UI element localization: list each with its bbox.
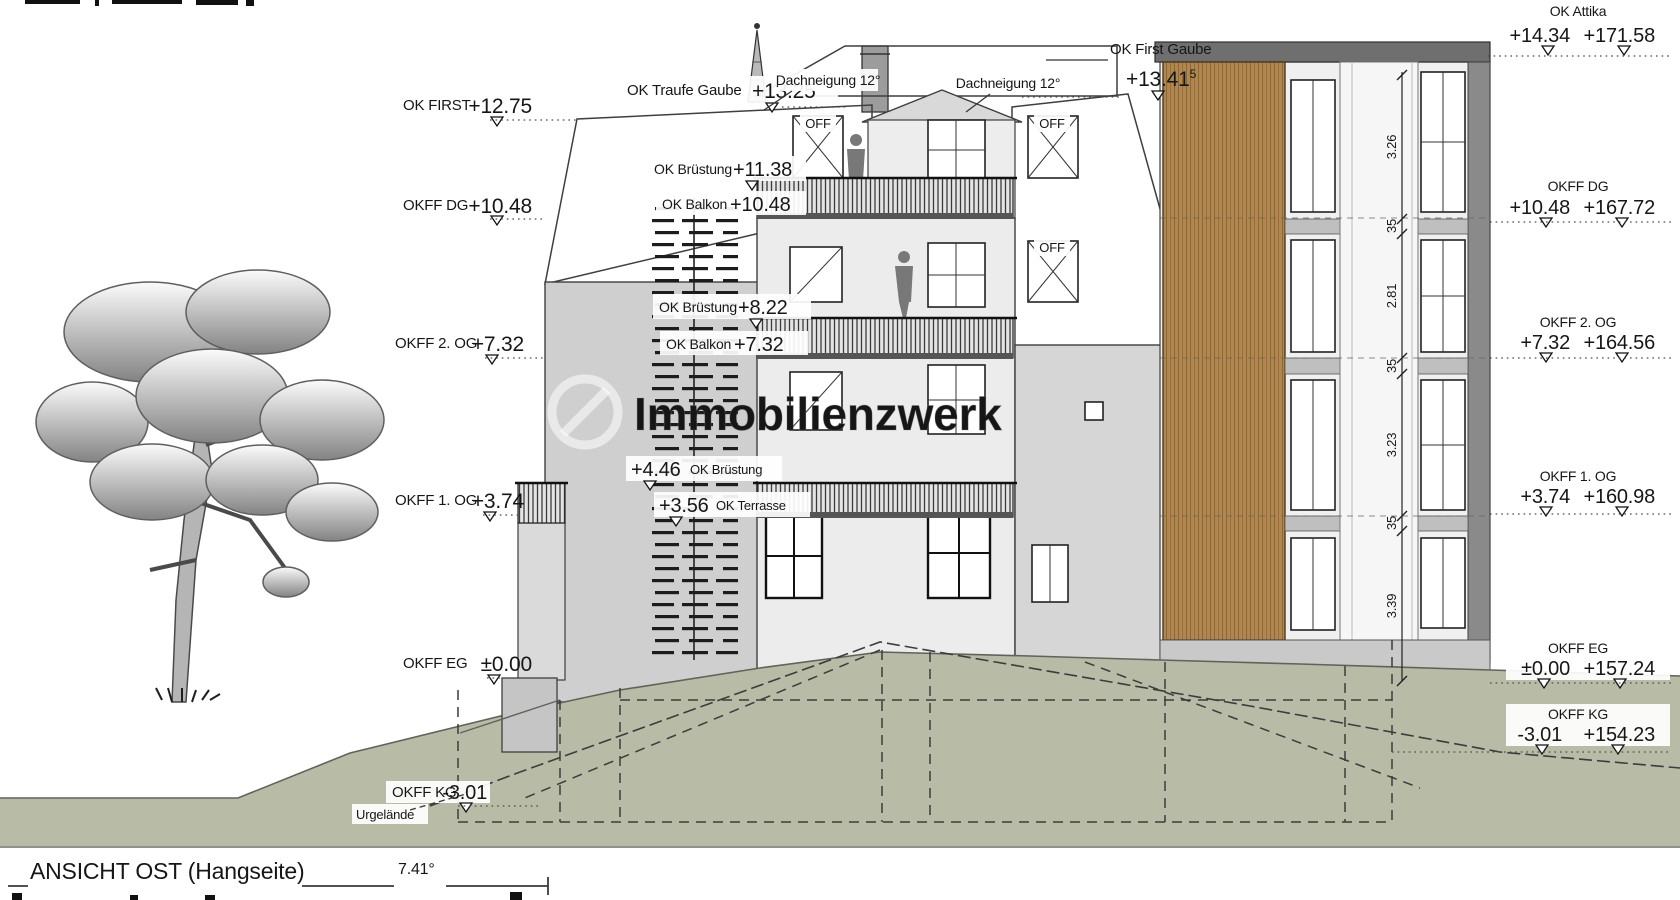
level-label: OKFF 1. OG	[395, 492, 477, 509]
level-marker-icon	[1540, 507, 1552, 516]
level-row-ok-attika: OK Attika +14.34 +171.58	[1488, 3, 1672, 56]
annotation-label: OK Balkon	[666, 336, 731, 352]
level-row-okff-2og: OKFF 2. OG +7.32	[395, 333, 545, 364]
tree	[36, 270, 384, 702]
level-marker-icon	[486, 355, 498, 364]
building	[515, 23, 1490, 702]
person-silhouette-1	[847, 134, 865, 180]
top-edge-fragment	[25, 0, 254, 6]
annotation-label: OK Traufe Gaube	[627, 82, 742, 99]
elevation-drawing-svg: Immobilienzwerk OK FIRST +12.75 OKFF DG …	[0, 0, 1680, 900]
level-marker-icon	[746, 181, 758, 190]
level-value: ±0.00	[481, 653, 532, 676]
level-value: +10.48	[468, 195, 532, 218]
level-value: -3.01	[1517, 724, 1562, 746]
level-label: OKFF KG	[1548, 706, 1608, 722]
level-row-okff-dg: OKFF DG +10.48	[403, 195, 545, 225]
level-absolute: +167.72	[1584, 197, 1656, 219]
dimension-value: 35	[1384, 359, 1399, 373]
svg-text:OFF: OFF	[1039, 116, 1065, 131]
svg-text:OFF: OFF	[805, 116, 831, 131]
level-absolute: +164.56	[1584, 332, 1656, 354]
tower-window-column-tall	[1421, 72, 1465, 628]
dimension-value: 35	[1384, 516, 1399, 530]
annotation-label: Dachneigung 12°	[776, 72, 881, 88]
level-marker-icon	[484, 512, 496, 521]
terrain-fill	[0, 652, 1680, 846]
level-absolute: +160.98	[1584, 486, 1656, 508]
title-block: ANSICHT OST (Hangseite) 7.41°	[8, 858, 548, 895]
annotation-label: OK Terrasse	[716, 498, 786, 513]
tower-glass-strip	[1340, 62, 1418, 640]
level-marker-icon	[488, 675, 500, 684]
annotation-value: +10.48	[730, 194, 791, 216]
tower	[1155, 42, 1490, 674]
annotation-value: +3.56	[659, 495, 709, 517]
tower-right-band	[1468, 62, 1490, 640]
level-row-okff-2og-right: OKFF 2. OG +7.32 +164.56	[1490, 314, 1672, 362]
annotation-label: Dachneigung 12°	[956, 75, 1061, 91]
annotation-value: +7.32	[734, 334, 784, 356]
annotation-label: OK Balkon	[662, 196, 727, 212]
level-value: +7.32	[472, 333, 524, 356]
level-absolute: +154.23	[1584, 724, 1656, 746]
dimension-value: 3.23	[1384, 433, 1399, 458]
bottom-edge-fragments	[12, 892, 522, 900]
annotation-value: +11.38	[733, 159, 792, 181]
tree-canopy	[36, 270, 384, 597]
level-marker-icon	[1542, 46, 1554, 55]
level-marker-icon	[491, 117, 503, 126]
level-row-okff-1og-right: OKFF 1. OG +3.74 +160.98	[1490, 468, 1672, 516]
level-label: OKFF DG	[403, 197, 468, 214]
dormer-label-2: OFF	[1034, 115, 1070, 132]
dormer-label-3: OFF	[1034, 239, 1070, 256]
level-marker-icon	[1616, 507, 1628, 516]
level-value: +10.48	[1509, 197, 1570, 219]
level-label: OKFF 1. OG	[1540, 468, 1617, 484]
annotation-label: OK First Gaube	[1110, 41, 1211, 58]
level-marker-icon	[1618, 46, 1630, 55]
urgelaende-label: Urgelände	[356, 807, 414, 822]
level-marker-icon	[491, 216, 503, 225]
annotation-value: +13.415	[1126, 67, 1197, 91]
level-row-okff-1og: OKFF 1. OG +3.74	[395, 490, 525, 521]
level-label: OKFF 2. OG	[395, 335, 477, 352]
annotation-value: +8.22	[738, 297, 788, 319]
annotation-value: +4.46	[631, 459, 681, 481]
annotation-label: OK Brüstung	[659, 299, 737, 315]
level-label: OK FIRST	[403, 97, 471, 114]
level-value: +12.75	[468, 95, 532, 118]
balkon-2og-annotation: OK Balkon +7.32	[660, 331, 808, 356]
terrain	[0, 652, 1680, 847]
drawing-title: ANSICHT OST (Hangseite)	[30, 858, 304, 884]
level-marker-icon	[1616, 218, 1628, 227]
facade-right-block	[1015, 345, 1162, 702]
annotation-label: OK Brüstung	[654, 161, 732, 177]
level-value: +3.74	[1520, 486, 1570, 508]
level-row-okff-dg-right: OKFF DG +10.48 +167.72	[1490, 178, 1672, 227]
level-label: OK Attika	[1550, 3, 1607, 19]
level-marker-icon	[1616, 353, 1628, 362]
level-value: +3.74	[472, 490, 525, 513]
dormer-label-1: OFF	[800, 115, 836, 132]
dimension-value: 2.81	[1384, 284, 1399, 309]
terrace-railing	[518, 483, 565, 523]
level-row-ok-first: OK FIRST +12.75	[403, 95, 577, 126]
level-value: +7.32	[1520, 332, 1570, 354]
dimension-value: 35	[1384, 219, 1399, 233]
watermark-text: Immobilienzwerk	[634, 388, 1002, 440]
level-label: OKFF EG	[1548, 640, 1608, 656]
level-absolute: +171.58	[1584, 25, 1656, 47]
svg-text:OFF: OFF	[1039, 240, 1065, 255]
level-label: OKFF DG	[1548, 178, 1609, 194]
level-label: OKFF 2. OG	[1540, 314, 1617, 330]
level-value: -3.01	[442, 782, 487, 804]
dimension-value: 3.39	[1384, 594, 1399, 619]
level-label: OKFF EG	[403, 655, 467, 672]
slope-angle-label: 7.41°	[398, 861, 435, 878]
level-absolute: +157.24	[1584, 658, 1656, 680]
wood-cladding-panel	[1163, 62, 1285, 640]
level-value: +14.34	[1509, 25, 1570, 47]
annotation-label: OK Brüstung	[690, 462, 762, 477]
elevation-drawing-page: Immobilienzwerk OK FIRST +12.75 OKFF DG …	[0, 0, 1680, 900]
dimension-value: 3.26	[1384, 135, 1399, 160]
level-value: ±0.00	[1521, 658, 1570, 680]
balkon-dg-annotation: OK Balkon +10.48	[656, 191, 806, 216]
grass-tufts	[156, 688, 220, 702]
